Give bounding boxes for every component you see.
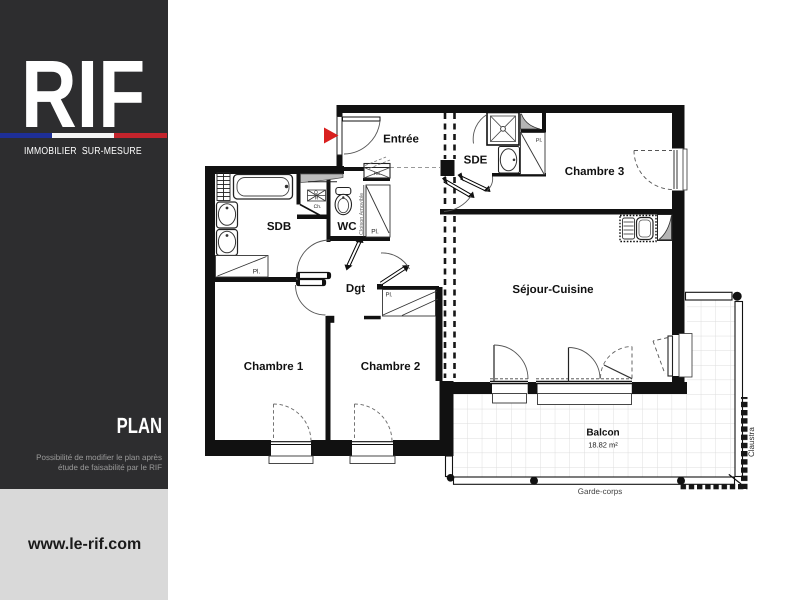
svg-text:Chambre 3: Chambre 3	[565, 166, 624, 178]
svg-text:WC: WC	[337, 221, 356, 233]
svg-text:18.82 m²: 18.82 m²	[588, 441, 618, 450]
svg-text:HC: HC	[374, 171, 381, 176]
svg-text:SDE: SDE	[464, 155, 488, 167]
svg-text:Balcon: Balcon	[586, 428, 619, 439]
svg-text:Q: Q	[314, 190, 318, 196]
svg-text:Pl.: Pl.	[536, 138, 543, 144]
svg-text:Pl.: Pl.	[371, 229, 379, 236]
svg-text:Pl.: Pl.	[385, 292, 392, 299]
svg-text:Pl.: Pl.	[253, 269, 261, 276]
svg-text:Claustra: Claustra	[747, 427, 756, 457]
svg-text:R: R	[315, 196, 319, 202]
svg-text:Ch.: Ch.	[314, 204, 322, 210]
svg-text:SDB: SDB	[267, 221, 291, 233]
svg-text:Dgt: Dgt	[346, 283, 365, 295]
svg-text:Séjour-Cuisine: Séjour-Cuisine	[512, 284, 593, 296]
svg-text:Cloison Amovible: Cloison Amovible	[359, 193, 365, 235]
svg-text:Entrée: Entrée	[383, 134, 419, 146]
svg-text:Chambre 2: Chambre 2	[361, 361, 420, 373]
svg-text:Garde-corps: Garde-corps	[578, 487, 622, 496]
svg-text:Chambre 1: Chambre 1	[244, 361, 304, 373]
